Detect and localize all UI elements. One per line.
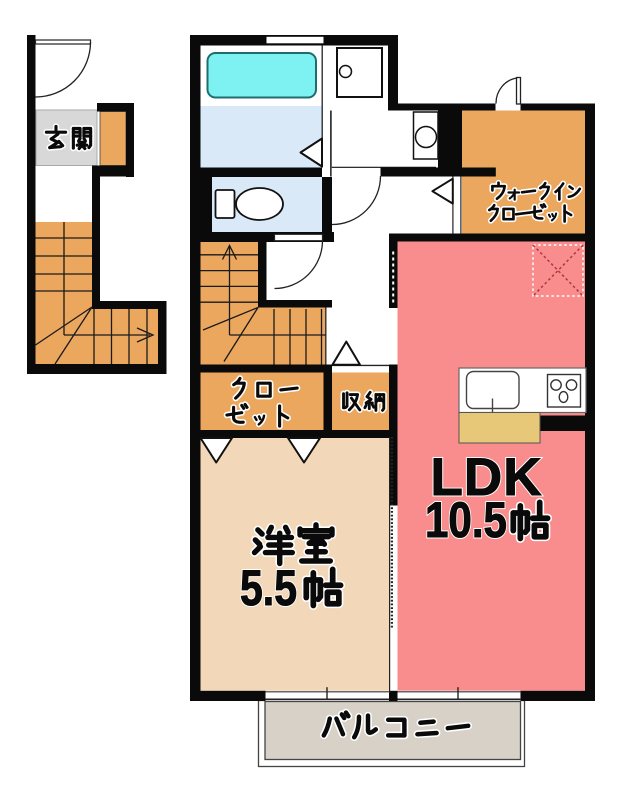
svg-text:10.5: 10.5: [425, 492, 507, 548]
svg-text:5.5: 5.5: [240, 560, 297, 616]
